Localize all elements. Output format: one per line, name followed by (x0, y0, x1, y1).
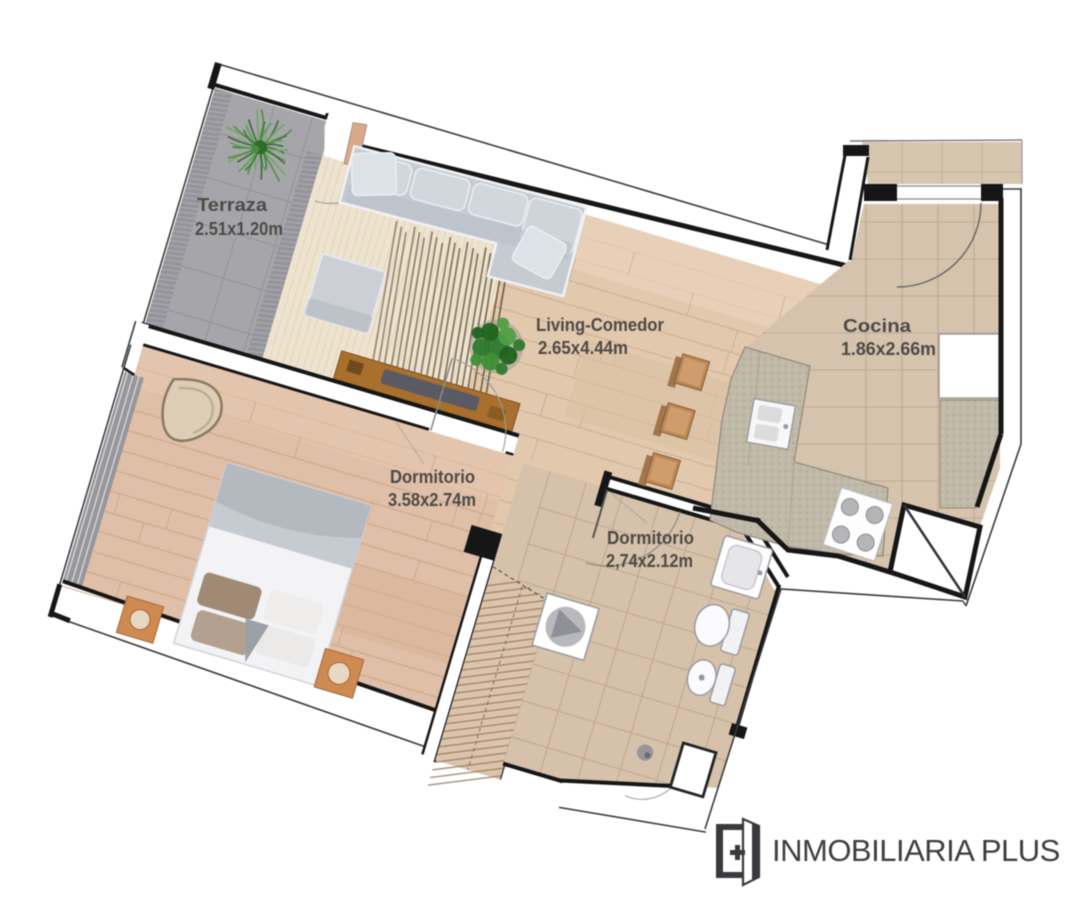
svg-text:2.51x1.20m: 2.51x1.20m (195, 219, 283, 239)
svg-text:Dormitorio: Dormitorio (390, 467, 475, 487)
svg-text:Living-Comedor: Living-Comedor (536, 315, 664, 335)
svg-text:INMOBILIARIA PLUS: INMOBILIARIA PLUS (772, 833, 1060, 868)
svg-text:2,74x2.12m: 2,74x2.12m (606, 551, 693, 571)
svg-text:Cocina: Cocina (843, 316, 912, 336)
svg-text:Terraza: Terraza (197, 195, 268, 215)
svg-text:2.65x4.44m: 2.65x4.44m (538, 338, 628, 358)
svg-text:1.86x2.66m: 1.86x2.66m (841, 339, 936, 359)
svg-text:Dormitorio: Dormitorio (607, 528, 694, 548)
svg-text:3.58x2.74m: 3.58x2.74m (388, 490, 476, 510)
